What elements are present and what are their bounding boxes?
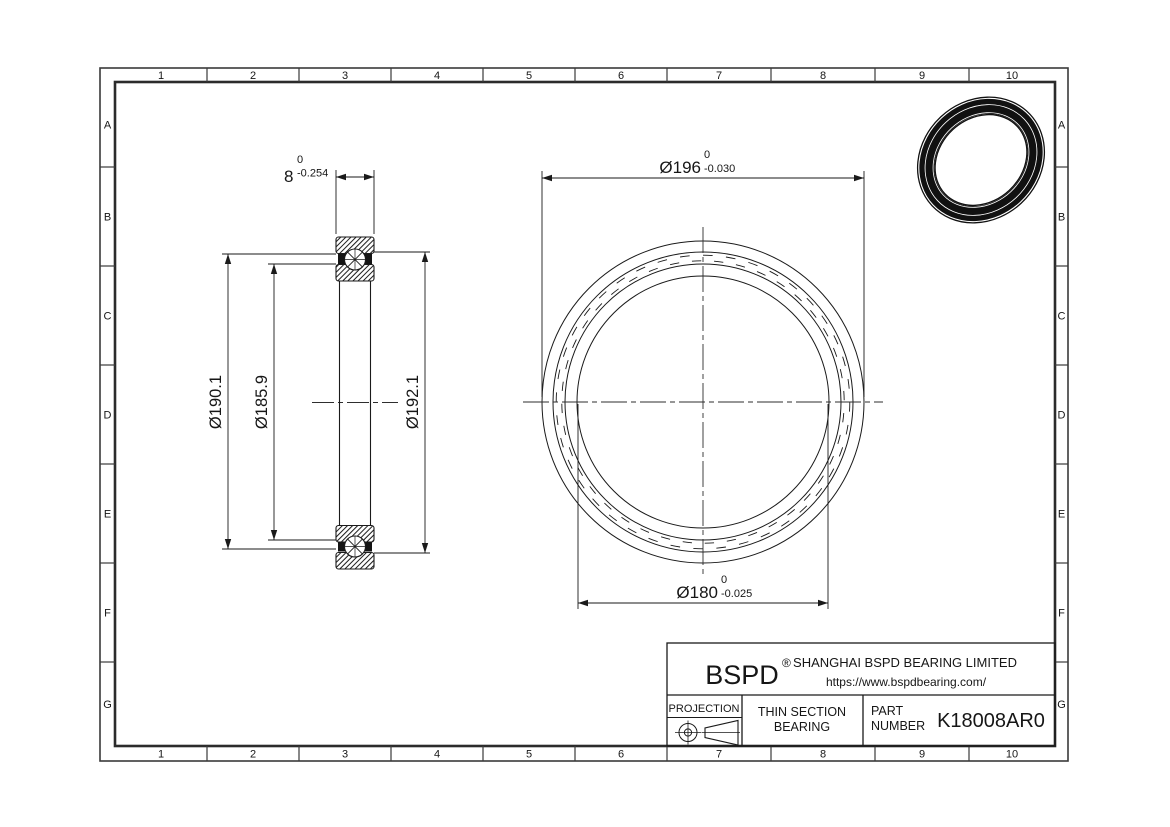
grid-column-label: 8 <box>820 70 826 82</box>
grid-row-label: G <box>1057 699 1066 711</box>
dim-od-tol-lower: -0.030 <box>704 163 735 175</box>
grid-row-label: A <box>1058 120 1066 132</box>
grid-column-label: 3 <box>342 70 348 82</box>
grid-column-label: 1 <box>158 749 164 761</box>
iso-ring-outer-edge <box>892 71 1070 249</box>
brand-logo: BSPD <box>705 660 779 690</box>
grid-column-label: 10 <box>1006 749 1018 761</box>
dim-bore-tol-lower: -0.025 <box>721 588 752 600</box>
dim-width-tol-lower: -0.254 <box>297 168 328 180</box>
grid-row-label: C <box>1058 311 1066 323</box>
dim-od-value: Ø196 <box>659 158 701 177</box>
grid-column-label: 7 <box>716 70 722 82</box>
iso-ring-highlight-1 <box>902 82 1059 238</box>
dim-width-tol-upper: 0 <box>297 154 303 166</box>
dim-inner-race-value: Ø192.1 <box>404 375 422 429</box>
grid-column-label: 6 <box>618 70 624 82</box>
grid-row-label: F <box>104 608 111 620</box>
dimension-outer-race-diameter: Ø190.1 <box>207 254 336 549</box>
registered-trademark-icon: ® <box>782 656 791 670</box>
cross-section-view: Ø190.1 Ø185.9 Ø192.1 8 <box>207 154 430 569</box>
company-name: SHANGHAI BSPD BEARING LIMITED <box>793 655 1017 670</box>
grid-column-label: 10 <box>1006 70 1018 82</box>
title-block: BSPD ® SHANGHAI BSPD BEARING LIMITED htt… <box>667 643 1055 746</box>
grid-row-label: F <box>1058 608 1065 620</box>
grid-column-label: 2 <box>250 749 256 761</box>
grid-column-label: 1 <box>158 70 164 82</box>
dim-outer-race-value: Ø190.1 <box>207 375 225 429</box>
projection-symbol-icon <box>675 721 740 746</box>
dim-pitch-value: Ø185.9 <box>253 375 271 429</box>
grid-column-label: 9 <box>919 70 925 82</box>
grid-row-label: E <box>1058 509 1065 521</box>
dim-od-tol-upper: 0 <box>704 149 710 161</box>
grid-row-label: C <box>104 311 112 323</box>
part-label-line2: NUMBER <box>871 719 925 733</box>
projection-label: PROJECTION <box>669 703 740 715</box>
product-type-line1: THIN SECTION <box>758 705 846 719</box>
grid-row-label: D <box>104 410 112 422</box>
section-top-ring <box>336 237 374 281</box>
grid-row-label: B <box>1058 212 1065 224</box>
part-number-value: K18008AR0 <box>937 710 1045 732</box>
drawing-page: 1122334455667788991010AABBCCDDEEFFGG <box>0 0 1170 827</box>
grid-column-label: 6 <box>618 749 624 761</box>
grid-column-label: 4 <box>434 70 440 82</box>
front-view: Ø196 0 -0.030 Ø180 0 -0.025 <box>523 149 883 609</box>
product-type-line2: BEARING <box>774 720 830 734</box>
grid-column-label: 2 <box>250 70 256 82</box>
grid-column-label: 3 <box>342 749 348 761</box>
grid-row-label: E <box>104 509 111 521</box>
dim-bore-value: Ø180 <box>676 583 718 602</box>
dimension-pitch-diameter: Ø185.9 <box>253 264 336 540</box>
part-label-line1: PART <box>871 704 904 718</box>
dim-bore-tol-upper: 0 <box>721 574 727 586</box>
grid-column-label: 9 <box>919 749 925 761</box>
grid-row-label: G <box>103 699 112 711</box>
isometric-view <box>892 71 1070 249</box>
grid-column-label: 7 <box>716 749 722 761</box>
company-website: https://www.bspdbearing.com/ <box>826 675 987 689</box>
grid-column-label: 5 <box>526 70 532 82</box>
grid-column-label: 8 <box>820 749 826 761</box>
dim-width-value: 8 <box>284 167 293 186</box>
dimension-width: 8 0 -0.254 <box>284 154 374 234</box>
grid-row-label: B <box>104 212 111 224</box>
iso-ring-band-inner <box>909 88 1054 232</box>
iso-ring-band-outer <box>898 78 1064 243</box>
section-bottom-ring <box>336 526 374 570</box>
engineering-drawing-canvas: 1122334455667788991010AABBCCDDEEFFGG <box>0 0 1170 827</box>
grid-column-label: 5 <box>526 749 532 761</box>
grid-column-label: 4 <box>434 749 440 761</box>
grid-row-label: A <box>104 120 112 132</box>
grid-row-label: D <box>1058 410 1066 422</box>
